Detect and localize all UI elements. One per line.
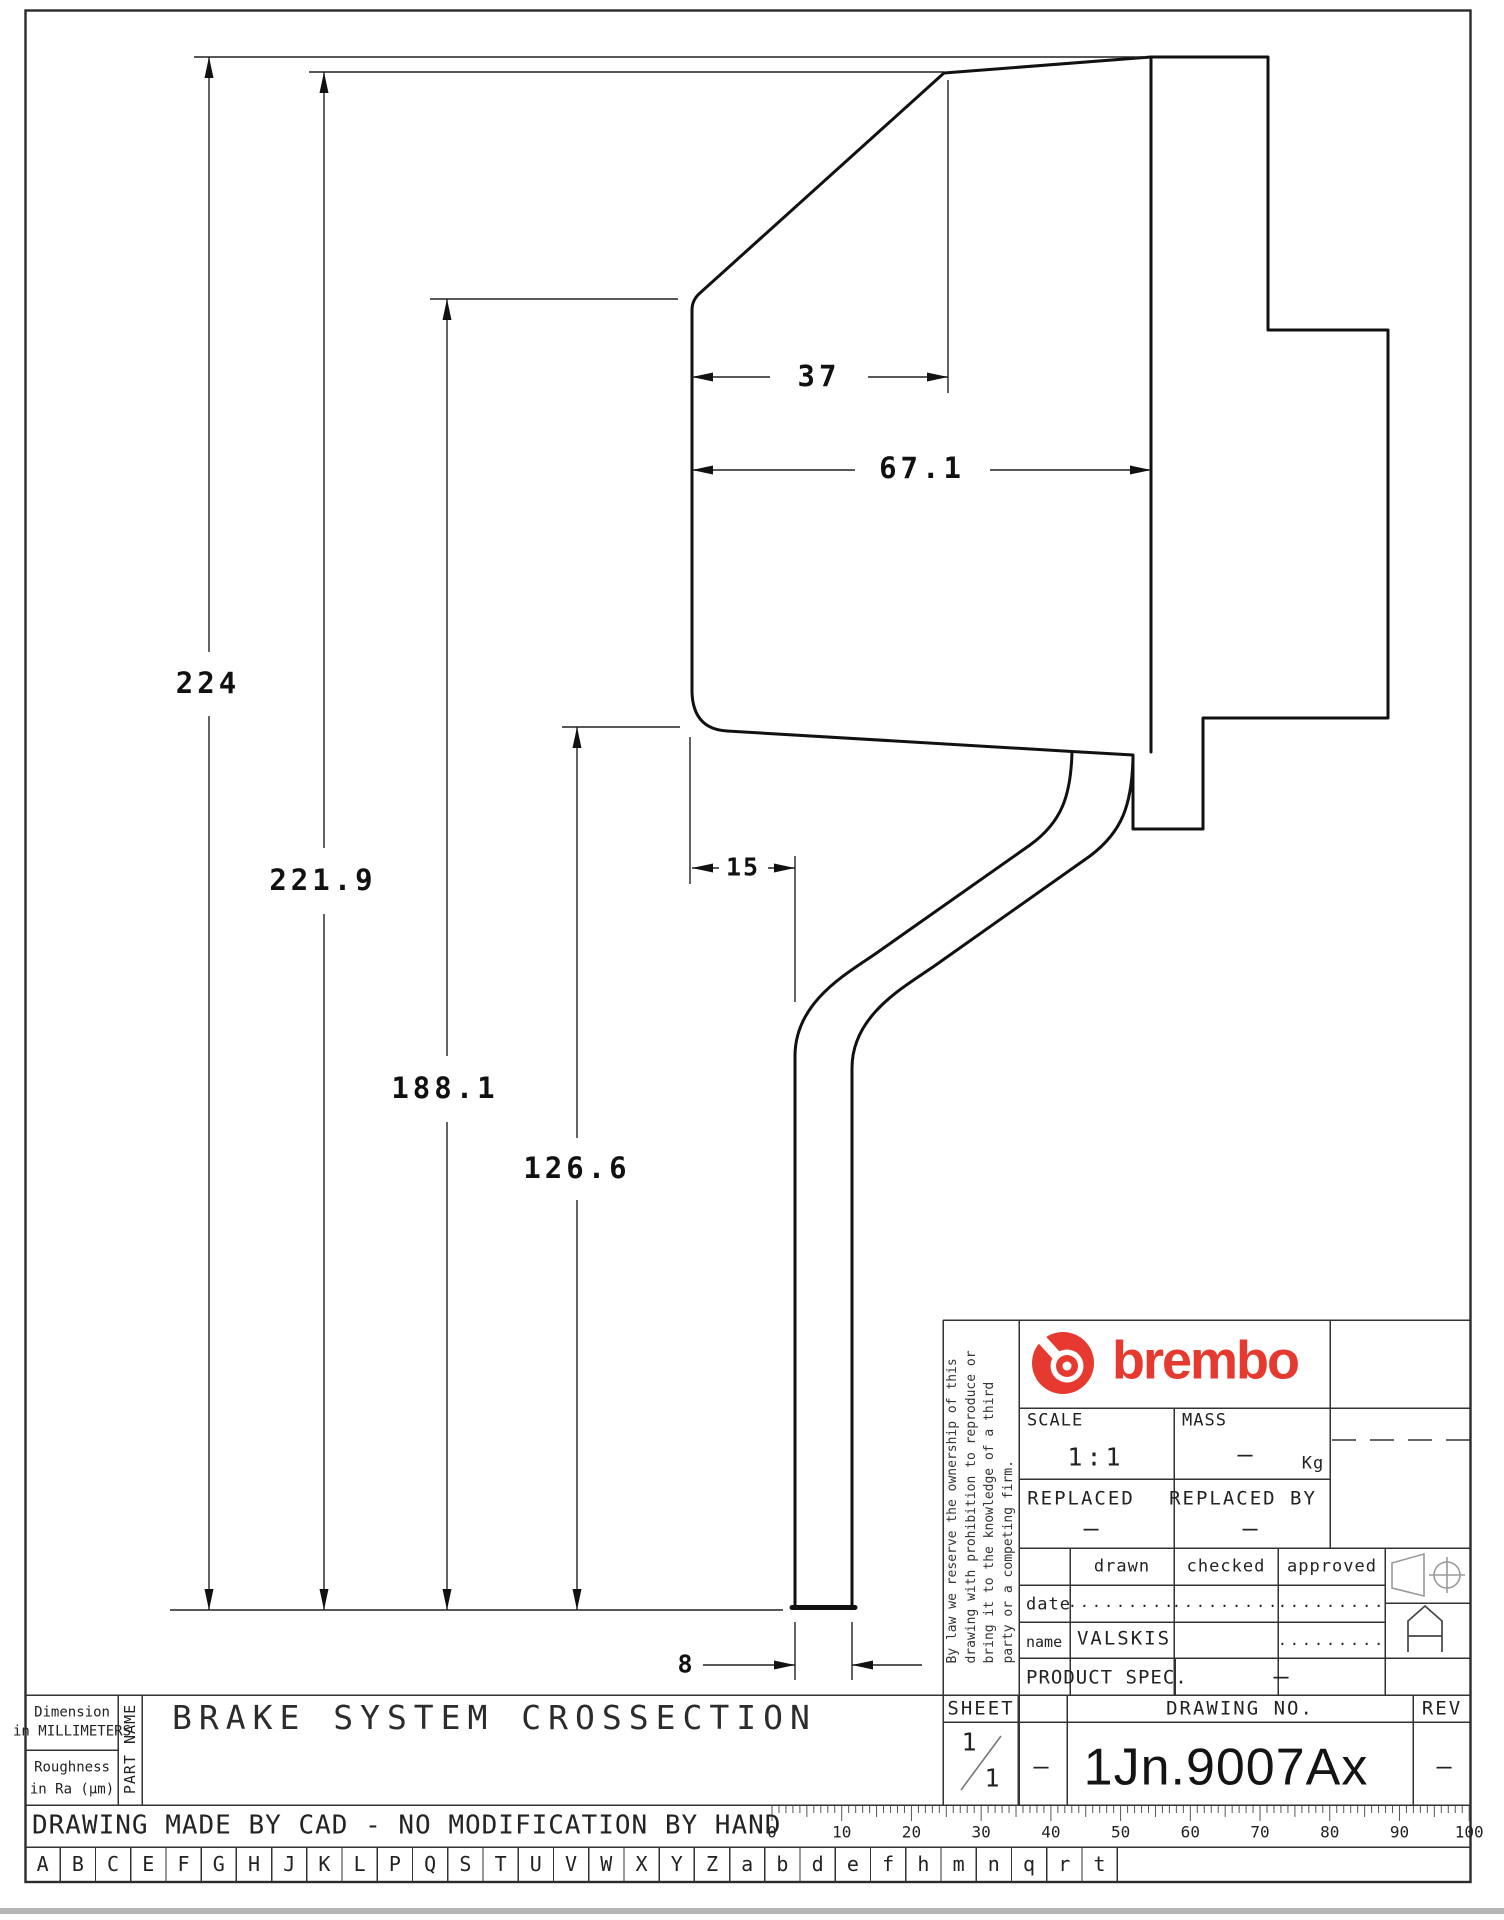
ruler-label: 60 — [1181, 1823, 1200, 1842]
dim-height-total: 224 — [169, 668, 247, 700]
brembo-logo-icon — [1032, 1331, 1094, 1394]
ruler-label: 30 — [972, 1823, 991, 1842]
drawn-column-header: drawn — [1094, 1558, 1150, 1577]
projection-symbol-icon — [1392, 1554, 1465, 1596]
drawing-no-value: 1Jn.9007Ax — [1084, 1739, 1369, 1796]
revision-letter-cell: Z — [706, 1852, 718, 1876]
dim-height-4: 126.6 — [516, 1153, 637, 1185]
bell-outline — [692, 57, 1388, 829]
sheet-col2-value: – — [1033, 1752, 1052, 1780]
date-row-label: date — [1026, 1596, 1071, 1615]
ruler-label: 70 — [1250, 1823, 1269, 1842]
part-name-title: BRAKE SYSTEM CROSSECTION — [172, 1700, 817, 1736]
roughness-note-line1: Roughness — [34, 1760, 110, 1775]
ruler-label: 10 — [832, 1823, 851, 1842]
revision-letter-cell: J — [283, 1852, 295, 1876]
date-approved-value: ......... — [1278, 1594, 1386, 1611]
revision-letter-cell: F — [178, 1852, 190, 1876]
format-letter-icon — [1408, 1606, 1442, 1652]
ruler-label: 0 — [767, 1823, 777, 1842]
revision-letter-cell: H — [248, 1852, 260, 1876]
revision-letter-cell: E — [142, 1852, 154, 1876]
revision-letter-cell: h — [917, 1852, 929, 1876]
date-checked-value: ......... — [1172, 1594, 1280, 1611]
approved-column-header: approved — [1287, 1558, 1377, 1577]
name-approved-value: ......... — [1278, 1632, 1386, 1649]
sheet-numerator: 1 — [961, 1728, 980, 1756]
mass-value: – — [1237, 1440, 1256, 1468]
name-row-label: name — [1026, 1634, 1062, 1651]
dim-width-mid: 67.1 — [872, 453, 972, 485]
dim-width-column: 8 — [672, 1650, 699, 1678]
revision-letter-cell: K — [318, 1852, 330, 1876]
replaced-by-value: – — [1242, 1514, 1261, 1542]
product-spec-label: PRODUCT SPEC. — [1026, 1668, 1188, 1689]
dimension-note-line2: in MILLIMETERS — [13, 1724, 131, 1739]
scale-label: SCALE — [1027, 1412, 1083, 1431]
revision-letter-cell: U — [530, 1852, 542, 1876]
date-drawn-value: ......... — [1068, 1594, 1176, 1611]
dim-height-2: 221.9 — [262, 865, 383, 897]
page-edge-shadow — [0, 1908, 1504, 1914]
ruler-label: 80 — [1320, 1823, 1339, 1842]
revision-letter-cell: X — [635, 1852, 647, 1876]
roughness-note-line2: in Ra (μm) — [30, 1782, 114, 1797]
revision-letter-cell: e — [847, 1852, 859, 1876]
ruler-label: 40 — [1041, 1823, 1060, 1842]
revision-letter-cell: q — [1023, 1852, 1035, 1876]
drawing-sheet: 224 221.9 188.1 126.6 37 67.1 15 8 By la… — [0, 0, 1504, 1920]
replaced-value: – — [1083, 1514, 1102, 1542]
revision-letter-cell: d — [812, 1852, 824, 1876]
drawing-no-label: DRAWING NO. — [1166, 1699, 1314, 1720]
dim-width-flange: 15 — [721, 853, 765, 881]
ownership-disclaimer: By law we reserve the ownership of this … — [944, 1350, 1018, 1663]
replaced-label: REPLACED — [1027, 1489, 1135, 1510]
dim-height-3: 188.1 — [384, 1073, 505, 1105]
ruler-label: 100 — [1455, 1823, 1484, 1842]
revision-letter-cell: n — [988, 1852, 1000, 1876]
replaced-by-label: REPLACED BY — [1169, 1489, 1317, 1510]
sheet-denominator: 1 — [984, 1764, 1003, 1792]
sheet-label: SHEET — [947, 1699, 1014, 1720]
revision-letter-cell: S — [459, 1852, 471, 1876]
brembo-logo-wordmark: brembo — [1112, 1331, 1298, 1390]
pipe-left-wall — [795, 752, 1072, 1607]
ruler-label: 90 — [1390, 1823, 1409, 1842]
dim-width-top: 37 — [791, 361, 848, 393]
revision-letter-cell: Q — [424, 1852, 436, 1876]
name-drawn-value: VALSKIS — [1077, 1629, 1171, 1650]
ruler-label: 20 — [902, 1823, 921, 1842]
dimension-note-line1: Dimension — [34, 1705, 110, 1720]
ruler-label: 50 — [1111, 1823, 1130, 1842]
revision-letter-cell: r — [1058, 1852, 1070, 1876]
revision-letter-cell: G — [213, 1852, 225, 1876]
scale-value: 1:1 — [1067, 1443, 1124, 1471]
revision-letter-cell: A — [37, 1852, 49, 1876]
revision-letter-cell: Y — [671, 1852, 683, 1876]
revision-letter-cell: V — [565, 1852, 577, 1876]
ruler-ticks — [772, 1806, 1469, 1821]
revision-letter-cell: L — [354, 1852, 366, 1876]
mass-label: MASS — [1182, 1412, 1227, 1431]
revision-letter-cell: a — [741, 1852, 753, 1876]
revision-letter-cell: W — [600, 1852, 612, 1876]
rev-value: – — [1436, 1752, 1455, 1780]
revision-letter-cell: f — [882, 1852, 894, 1876]
revision-letter-cell: P — [389, 1852, 401, 1876]
part-name-label: PART NAME — [122, 1704, 139, 1794]
revision-letter-cell: C — [107, 1852, 119, 1876]
product-spec-value: – — [1273, 1662, 1292, 1690]
revision-letter-cell: b — [776, 1852, 788, 1876]
rev-label: REV — [1422, 1699, 1462, 1720]
revision-letter-cell: m — [953, 1852, 965, 1876]
checked-column-header: checked — [1187, 1558, 1266, 1577]
revision-letter-cell: T — [495, 1852, 507, 1876]
cad-note: DRAWING MADE BY CAD - NO MODIFICATION BY… — [32, 1812, 781, 1841]
mass-unit: Kg — [1302, 1455, 1324, 1474]
revision-letter-cell: t — [1093, 1852, 1105, 1876]
revision-letter-cell: B — [72, 1852, 84, 1876]
